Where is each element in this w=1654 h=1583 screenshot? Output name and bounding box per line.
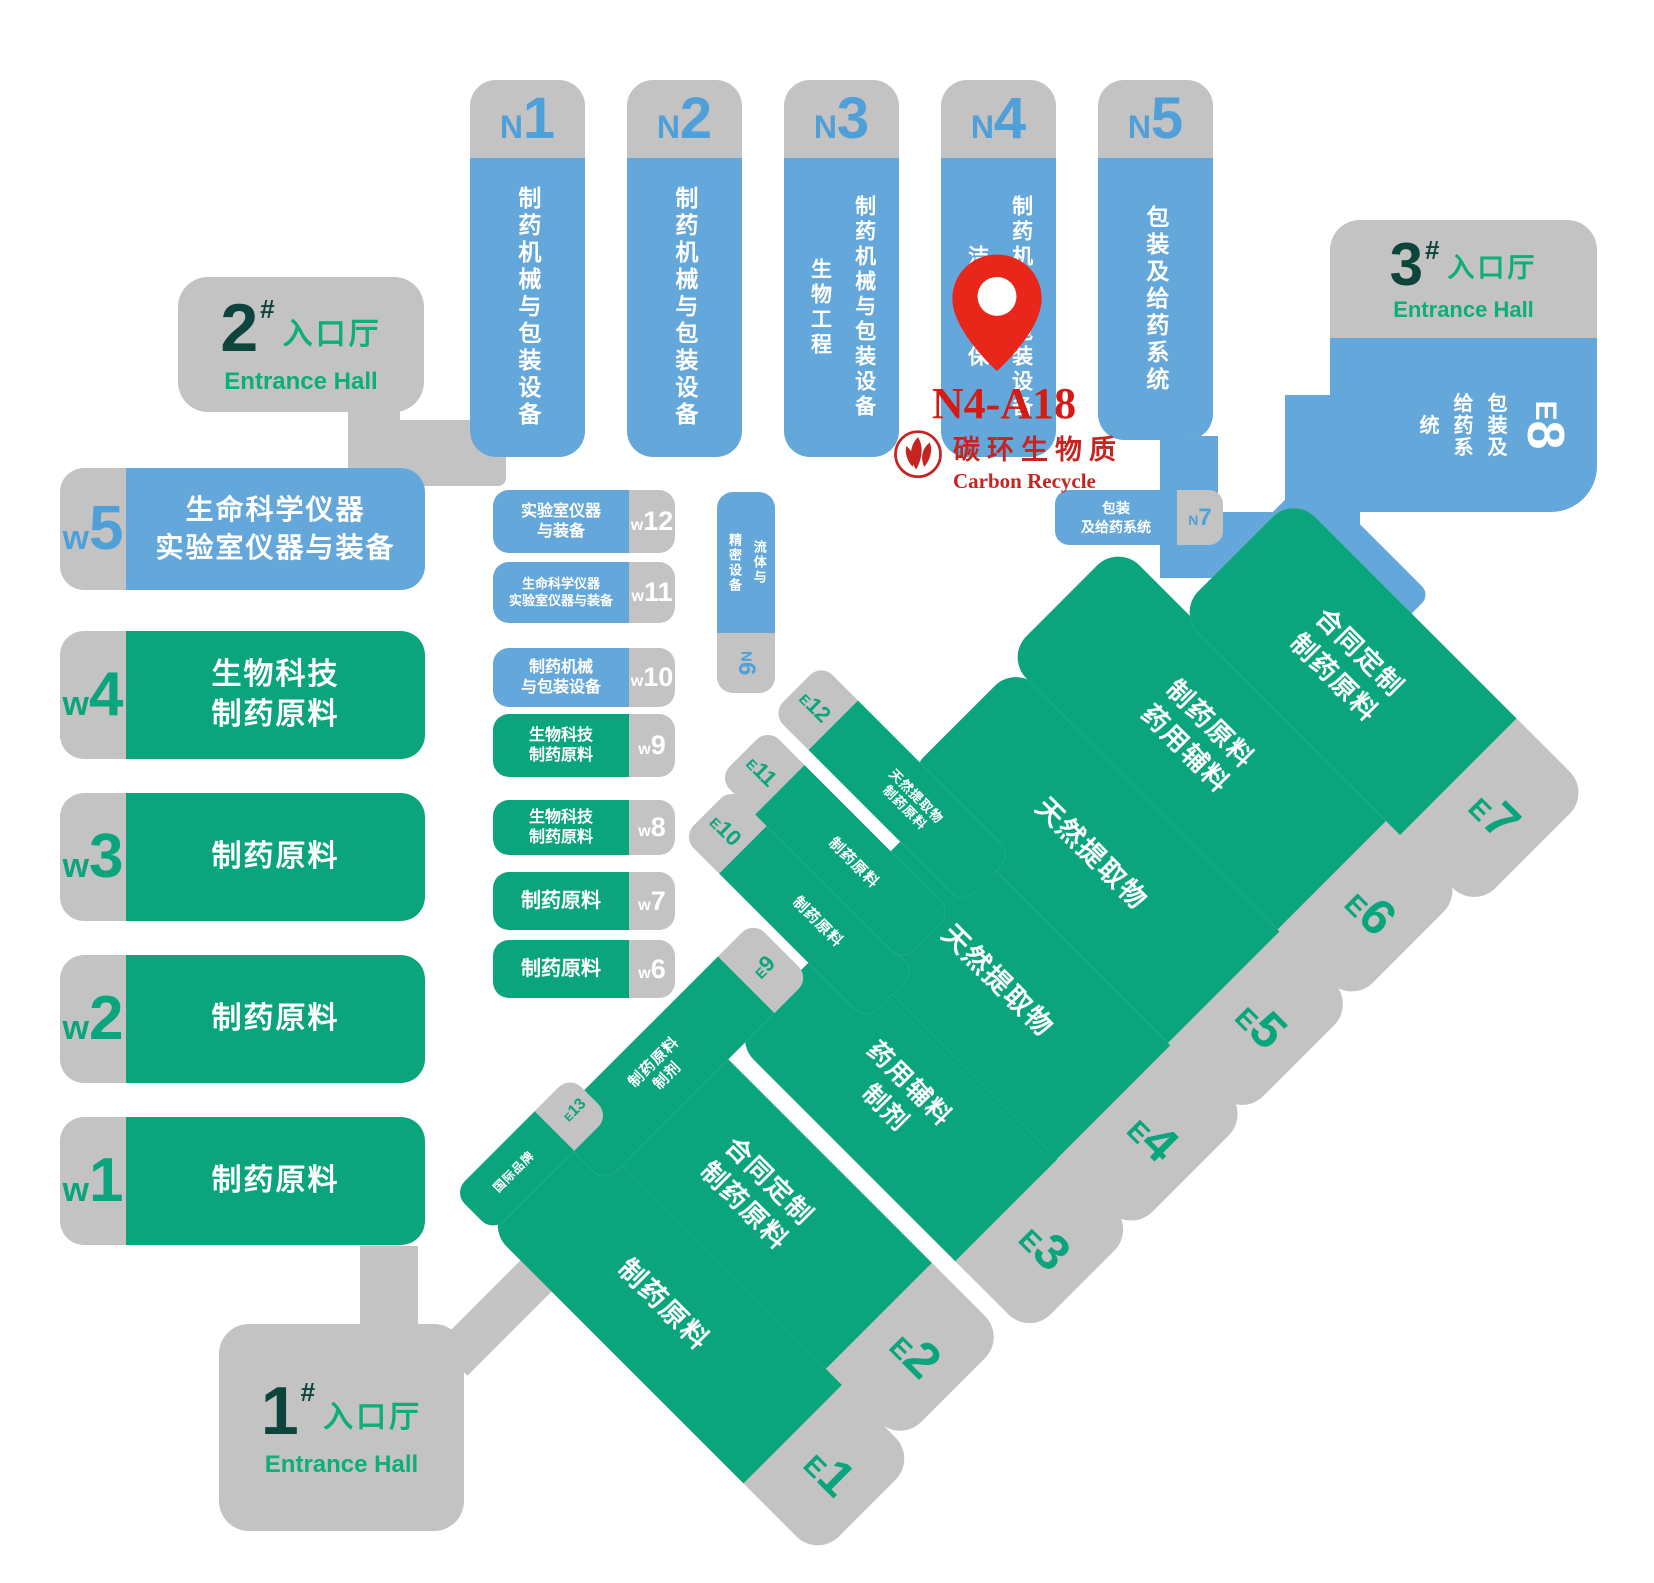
hall-e4-label: E4 bbox=[1119, 1102, 1187, 1170]
hall-e12-label: E12 bbox=[795, 687, 834, 726]
hall-w8-label: w8 bbox=[638, 814, 665, 841]
booth-number-label: N4-A18 bbox=[879, 378, 1129, 429]
hall-w2-category: 制药原料 bbox=[126, 955, 425, 1083]
hall-w11-label: w11 bbox=[632, 579, 673, 606]
hall-w10: 制药机械 与包装设备 w10 bbox=[493, 648, 675, 707]
carbon-recycle-logo-icon bbox=[891, 428, 945, 484]
hall-n1-category: 制药机械与包装设备 bbox=[509, 186, 546, 429]
hall-w5-category: 生命科学仪器 实验室仪器与装备 bbox=[126, 468, 425, 590]
hall-w9-label: w9 bbox=[638, 732, 665, 759]
hall-n2-category: 制药机械与包装设备 bbox=[666, 186, 703, 429]
hall-n3-category: 制药机械与包装设备 生物工程 bbox=[797, 195, 885, 420]
hall-w12-category: 实验室仪器 与装备 bbox=[493, 490, 629, 553]
hall-w6-label: w6 bbox=[638, 956, 665, 983]
hall-w3-label: w3 bbox=[63, 826, 124, 888]
hall-n6: 流体与 精密设备 N6 bbox=[717, 492, 775, 693]
hall-e7-label: E7 bbox=[1461, 780, 1529, 848]
hall-w6: 制药原料 w6 bbox=[493, 940, 675, 998]
hall-w10-label: w10 bbox=[631, 664, 674, 691]
entrance-3-hash: # bbox=[1425, 237, 1439, 263]
hall-n2: N2 制药机械与包装设备 bbox=[627, 80, 742, 457]
hall-e9-label: E9 bbox=[748, 952, 779, 983]
hall-n6-label: N6 bbox=[717, 633, 775, 693]
entrance-2-number: 2 bbox=[220, 294, 258, 362]
hall-n5-label: N5 bbox=[1128, 90, 1183, 148]
hall-n5-category: 包装及给药系统 bbox=[1137, 205, 1174, 394]
hall-w1-category: 制药原料 bbox=[126, 1117, 425, 1245]
hall-e3-label: E3 bbox=[1011, 1211, 1079, 1279]
hall-e8: 包装及 给药系统 E8 bbox=[1330, 338, 1597, 512]
hall-e10-label: E10 bbox=[706, 811, 745, 850]
hall-w4: w4 生物科技 制药原料 bbox=[60, 631, 425, 759]
hall-n7-category: 包装 及给药系统 bbox=[1055, 490, 1177, 545]
hall-w12: 实验室仪器 与装备 w12 bbox=[493, 490, 675, 553]
entrance-2-label-cn: 入口厅 bbox=[283, 320, 382, 350]
hall-w10-category: 制药机械 与包装设备 bbox=[493, 648, 629, 707]
hall-n7: 包装 及给药系统 N7 bbox=[1055, 490, 1223, 545]
hall-w8: 生物科技 制药原料 w8 bbox=[493, 800, 675, 855]
hall-w8-category: 生物科技 制药原料 bbox=[493, 800, 629, 855]
logo-text-cn: 碳环生物质 bbox=[953, 428, 1123, 467]
hall-w5-label: w5 bbox=[63, 498, 124, 560]
hall-w2: w2 制药原料 bbox=[60, 955, 425, 1083]
hall-n1-label: N1 bbox=[500, 90, 555, 148]
hall-w6-category: 制药原料 bbox=[493, 940, 629, 998]
logo-text-en: Carbon Recycle bbox=[953, 469, 1123, 494]
hall-w2-label: w2 bbox=[63, 988, 124, 1050]
corridor-entrance1-stem bbox=[360, 1246, 418, 1328]
hall-w1: w1 制药原料 bbox=[60, 1117, 425, 1245]
hall-w1-label: w1 bbox=[63, 1150, 124, 1212]
hall-e8-label: E8 bbox=[1519, 401, 1571, 450]
entrance-3-label-cn: 入口厅 bbox=[1447, 255, 1537, 282]
hall-e13-label: E13 bbox=[560, 1096, 589, 1125]
location-pin-icon bbox=[940, 238, 1054, 390]
hall-w5: w5 生命科学仪器 实验室仪器与装备 bbox=[60, 468, 425, 590]
entrance-1-hash: # bbox=[301, 1379, 315, 1405]
entrance-1-number: 1 bbox=[261, 1377, 299, 1445]
entrance-hall-3: 3 # 入口厅 Entrance Hall bbox=[1330, 220, 1597, 338]
entrance-3-number: 3 bbox=[1390, 235, 1423, 295]
hall-w9-category: 生物科技 制药原料 bbox=[493, 714, 629, 777]
hall-n4-label: N4 bbox=[971, 90, 1026, 148]
hall-w7-label: w7 bbox=[638, 888, 665, 915]
hall-w9: 生物科技 制药原料 w9 bbox=[493, 714, 675, 777]
hall-n3-label: N3 bbox=[814, 90, 869, 148]
entrance-hall-2: 2 # 入口厅 Entrance Hall bbox=[178, 277, 424, 412]
hall-n7-label: N7 bbox=[1188, 506, 1211, 530]
hall-w3-category: 制药原料 bbox=[126, 793, 425, 921]
hall-w7: 制药原料 w7 bbox=[493, 872, 675, 930]
hall-w4-category: 生物科技 制药原料 bbox=[126, 631, 425, 759]
hall-e5-label: E5 bbox=[1227, 989, 1295, 1057]
hall-e8-category: 包装及 给药系统 bbox=[1410, 382, 1512, 469]
entrance-3-label-en: Entrance Hall bbox=[1393, 297, 1534, 323]
entrance-1-label-cn: 入口厅 bbox=[323, 1403, 422, 1433]
hall-w3: w3 制药原料 bbox=[60, 793, 425, 921]
hall-w11: 生命科学仪器 实验室仪器与装备 w11 bbox=[493, 562, 675, 623]
hall-n6-category: 流体与 精密设备 bbox=[721, 533, 770, 593]
hall-n2-label: N2 bbox=[657, 90, 712, 148]
hall-e6-label: E6 bbox=[1337, 876, 1405, 944]
hall-e2-label: E2 bbox=[882, 1319, 950, 1387]
hall-w11-category: 生命科学仪器 实验室仪器与装备 bbox=[493, 562, 629, 623]
hall-w7-category: 制药原料 bbox=[493, 872, 629, 930]
hall-w4-label: w4 bbox=[63, 664, 124, 726]
exhibitor-logo: 碳环生物质 Carbon Recycle bbox=[891, 428, 1123, 494]
hall-e1-label: E1 bbox=[796, 1437, 864, 1505]
hall-w12-label: w12 bbox=[631, 508, 674, 535]
hall-n1: N1 制药机械与包装设备 bbox=[470, 80, 585, 457]
entrance-2-hash: # bbox=[260, 296, 274, 322]
floor-plan-map: 2 # 入口厅 Entrance Hall 1 # 入口厅 Entrance H… bbox=[0, 0, 1654, 1583]
entrance-2-label-en: Entrance Hall bbox=[224, 368, 377, 396]
entrance-hall-1: 1 # 入口厅 Entrance Hall bbox=[219, 1324, 464, 1531]
hall-e11-label: E11 bbox=[742, 752, 781, 791]
entrance-1-label-en: Entrance Hall bbox=[265, 1451, 418, 1479]
